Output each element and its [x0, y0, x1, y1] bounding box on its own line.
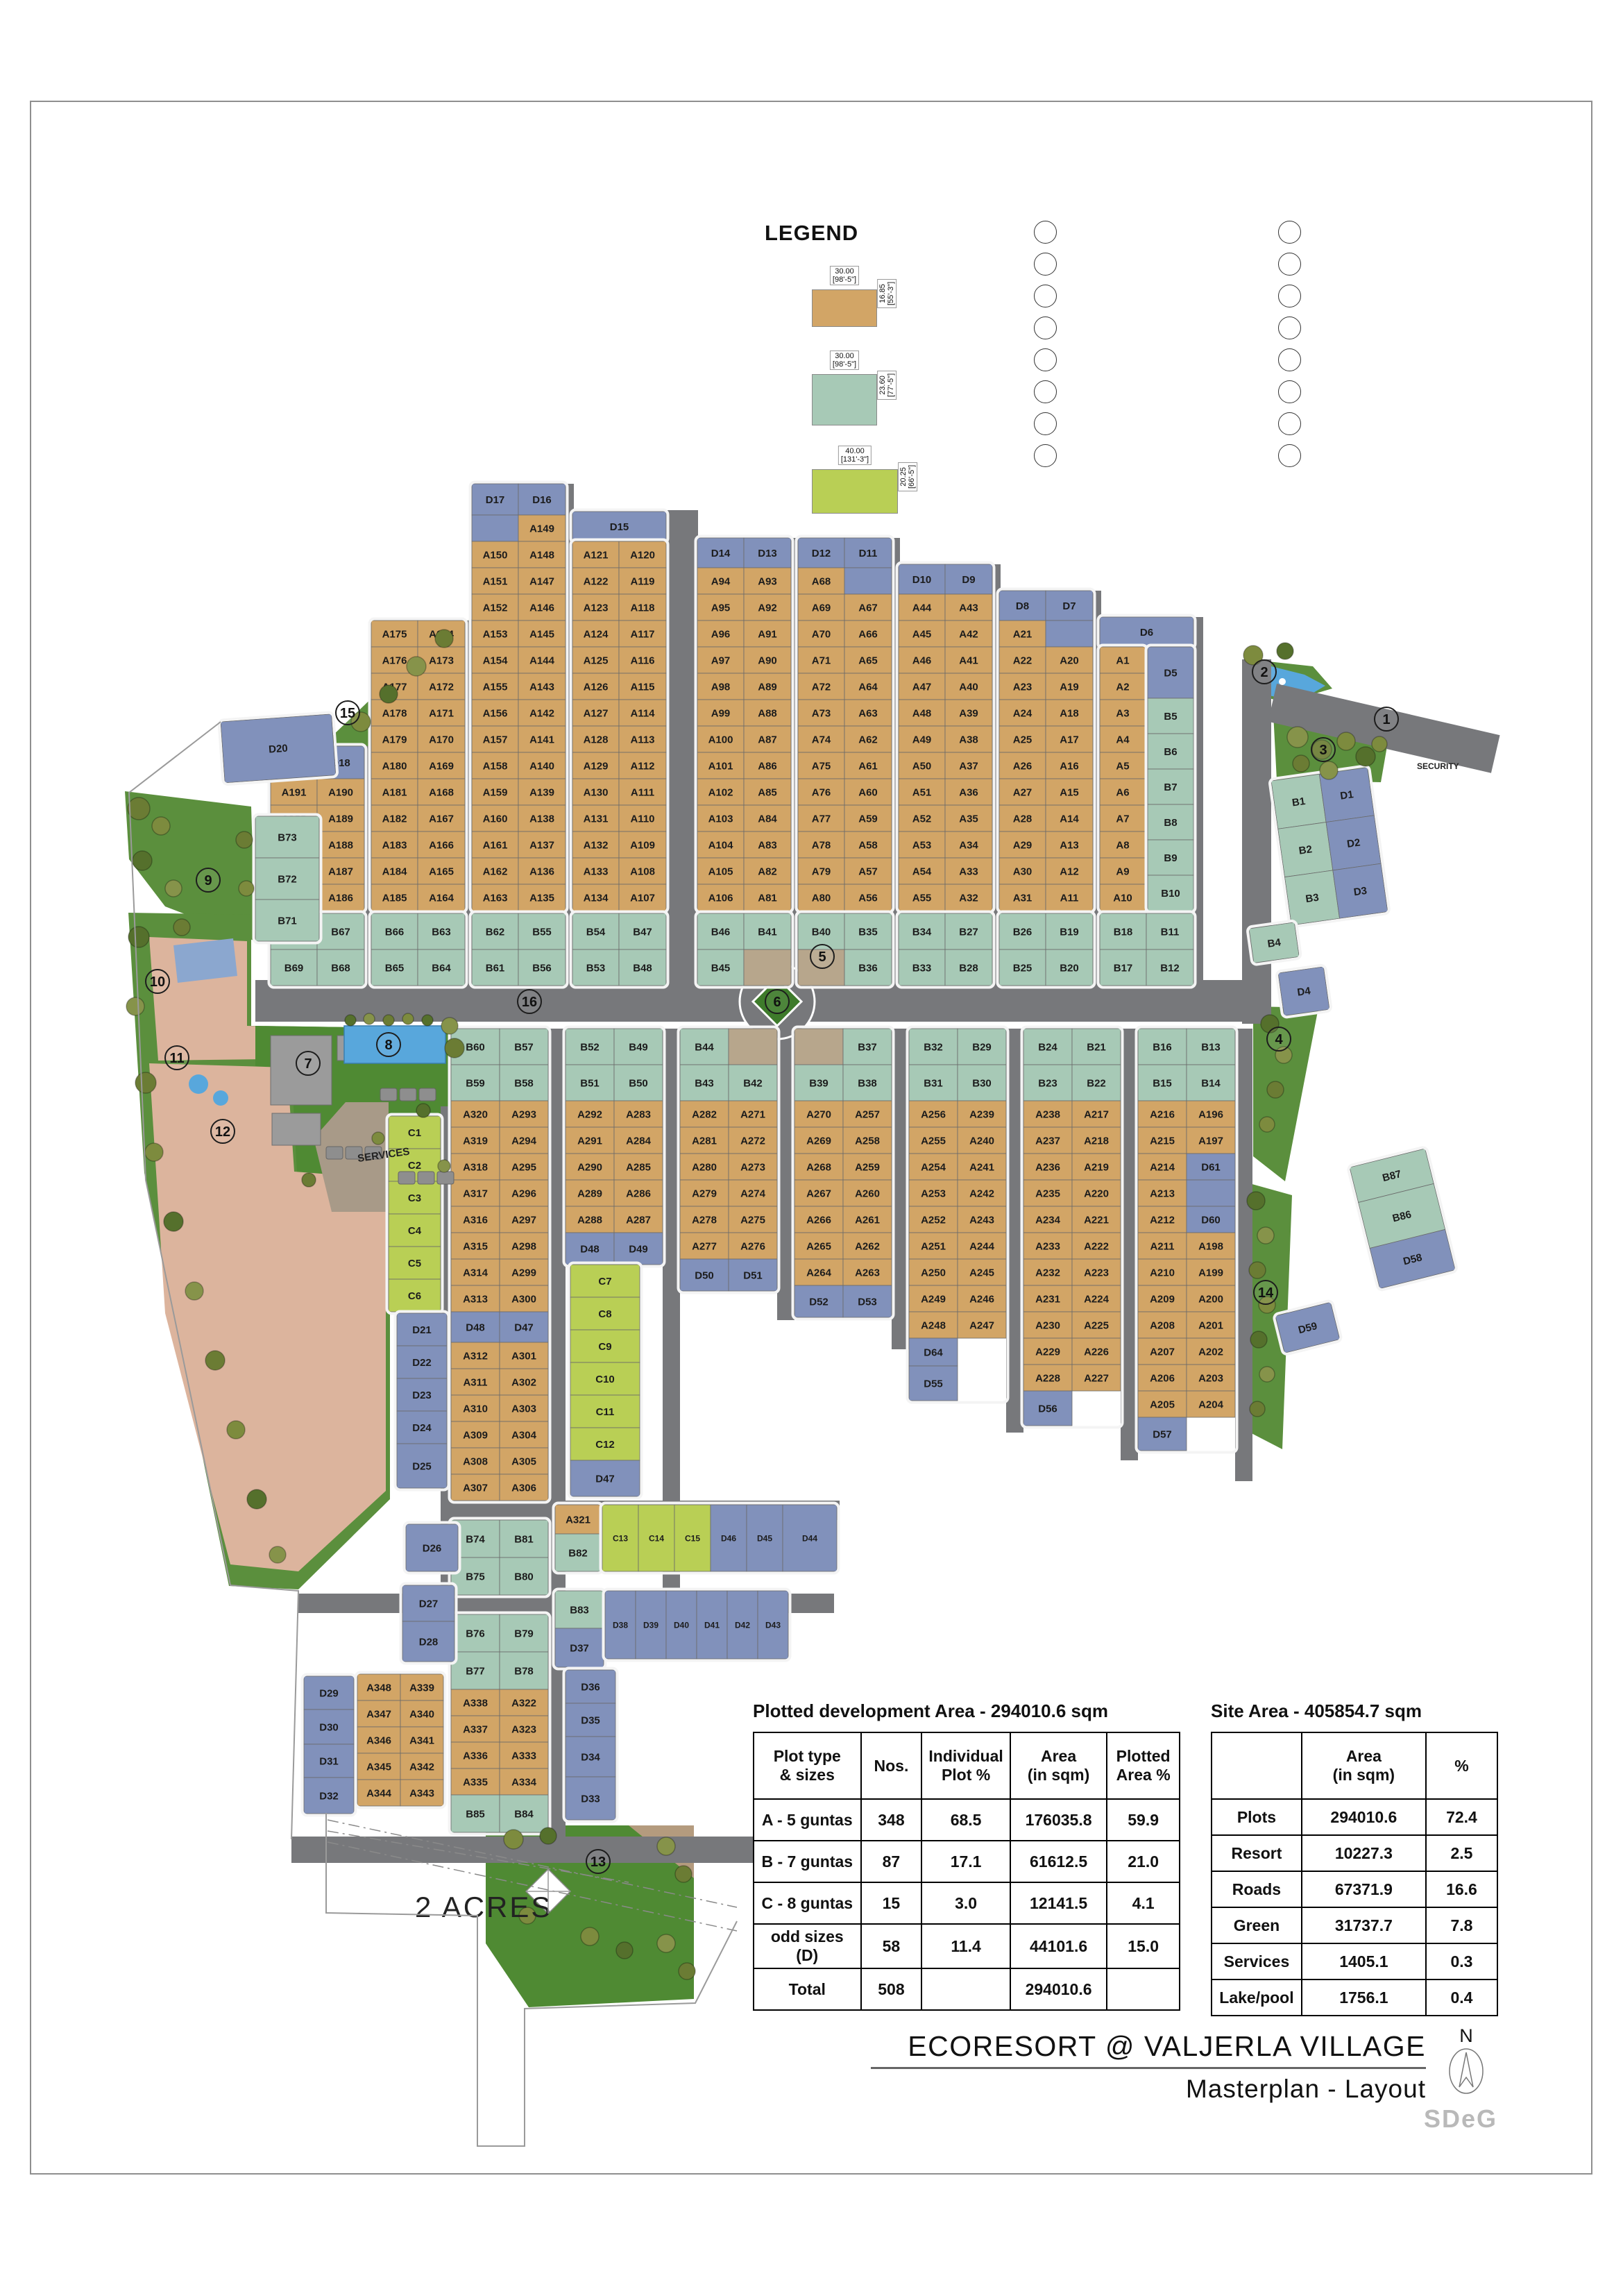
- plot-label: A240: [969, 1135, 994, 1147]
- plot-label: D4: [1296, 985, 1311, 999]
- plot-label: A338: [463, 1697, 488, 1709]
- plot-label: A293: [511, 1108, 536, 1120]
- legend-item-C: 40.00[131'-3"]20.25[66'-5"]: [765, 464, 1021, 519]
- tree-icon: [345, 1015, 356, 1026]
- legend-title: LEGEND: [765, 221, 1021, 246]
- table-cell: 67371.9: [1302, 1871, 1426, 1907]
- plot-label: A117: [630, 628, 654, 640]
- amenity-number-icon: [1278, 316, 1301, 339]
- plot-label: B41: [758, 926, 777, 938]
- plot-label: B59: [466, 1077, 485, 1089]
- plot-label: B65: [385, 962, 405, 974]
- plot-label: A317: [463, 1188, 488, 1199]
- table-row: A - 5 guntas34868.5176035.859.9: [754, 1799, 1180, 1841]
- water-feature: [213, 1090, 228, 1106]
- plot-label: B50: [629, 1077, 648, 1089]
- plot-block: B34B27B33B28: [897, 912, 994, 988]
- plot-label: A316: [463, 1214, 488, 1226]
- plot-label: A212: [1150, 1214, 1175, 1226]
- plot-label: A127: [584, 707, 609, 719]
- cottage-tent-icon: [418, 1172, 434, 1184]
- plot-label: A15: [1060, 786, 1079, 798]
- table-cell: 0.4: [1426, 1980, 1497, 2016]
- plot-label: B31: [924, 1077, 943, 1089]
- plot-label: B62: [486, 926, 505, 938]
- plot-label: C15: [685, 1534, 700, 1544]
- plot-label: D42: [735, 1621, 750, 1630]
- amenity-marker-13: 13: [586, 1850, 610, 1873]
- plot-cell: [1046, 621, 1093, 647]
- plot-label: A42: [959, 628, 978, 640]
- plot-label: A77: [812, 813, 831, 825]
- legend-swatch: [812, 469, 898, 514]
- amenity-marker-6: 6: [765, 990, 789, 1013]
- plot-label: A274: [740, 1188, 766, 1199]
- table-cell: 17.1: [921, 1841, 1010, 1882]
- plot-label: A19: [1060, 681, 1079, 693]
- table-cell: 10227.3: [1302, 1835, 1426, 1871]
- plot-label: A280: [692, 1161, 717, 1173]
- amenity-item-1: [1034, 221, 1278, 244]
- plot-label: D55: [924, 1378, 943, 1390]
- plot-label: D8: [1016, 600, 1029, 612]
- plot-label: A228: [1035, 1372, 1060, 1384]
- plot-label: D31: [319, 1755, 339, 1767]
- plot-label: A107: [630, 892, 655, 904]
- table-header-cell: Plot type & sizes: [754, 1732, 861, 1799]
- plot-label: D17: [486, 494, 505, 506]
- tree-icon: [302, 1173, 316, 1187]
- plot-label: B29: [972, 1041, 992, 1053]
- plot-label: D37: [570, 1642, 589, 1654]
- plot-label: B26: [1013, 926, 1033, 938]
- table-cell: Resort: [1212, 1835, 1302, 1871]
- plot-label: A4: [1116, 734, 1130, 745]
- plot-label: A25: [1013, 734, 1033, 745]
- plot-label: A136: [529, 866, 554, 877]
- plot-label: A128: [584, 734, 609, 745]
- plot-label: A342: [409, 1761, 434, 1773]
- plot-label: A234: [1035, 1214, 1061, 1226]
- plot-label: A169: [429, 760, 454, 772]
- plot-label: A275: [740, 1214, 765, 1226]
- plot-label: B52: [580, 1041, 600, 1053]
- plot-label: A130: [584, 786, 609, 798]
- plot-label: D9: [962, 574, 975, 586]
- plot-label: A113: [630, 734, 654, 745]
- plot-label: A232: [1035, 1267, 1060, 1278]
- amenity-number-icon: [1034, 221, 1057, 244]
- plot-label: A334: [511, 1776, 537, 1788]
- plot-label: B77: [466, 1665, 485, 1677]
- compass-icon: [1447, 2047, 1486, 2095]
- plot-label: A122: [584, 575, 609, 587]
- plot-label: A27: [1013, 786, 1033, 798]
- plot-label: A253: [921, 1188, 946, 1199]
- tree-icon: [239, 881, 254, 896]
- plot-label: B66: [385, 926, 405, 938]
- tree-icon: [1320, 761, 1338, 779]
- plot-label: A292: [577, 1108, 602, 1120]
- plot-label: C5: [408, 1258, 421, 1269]
- plot-label: A305: [511, 1455, 536, 1467]
- table-header-cell: Plotted Area %: [1107, 1732, 1180, 1799]
- plot-label: D56: [1038, 1403, 1057, 1415]
- plot-label: D61: [1201, 1161, 1221, 1173]
- plot-label: D41: [704, 1621, 720, 1630]
- plot-label: B82: [568, 1547, 588, 1559]
- plot-label: A56: [858, 892, 878, 904]
- plot-label: A162: [483, 866, 508, 877]
- amenity-marker-16: 16: [518, 990, 541, 1013]
- table-cell: 59.9: [1107, 1799, 1180, 1841]
- plot-label: A123: [584, 602, 609, 614]
- plot-label: A55: [912, 892, 932, 904]
- plot-label: B17: [1114, 962, 1133, 974]
- plot-label: A65: [858, 655, 878, 666]
- legend: LEGEND 30.00[98'-5"]16.85[55'-3"]30.00[9…: [765, 221, 1021, 555]
- plot-label: C10: [595, 1374, 615, 1385]
- plot-cell: [1187, 1180, 1235, 1206]
- plot-label: A168: [429, 786, 454, 798]
- table-cell: 0.3: [1426, 1943, 1497, 1980]
- plot-label: A138: [529, 813, 554, 825]
- plot-label: A198: [1198, 1240, 1223, 1252]
- plot-label: A155: [483, 681, 508, 693]
- plot-label: A95: [711, 602, 731, 614]
- plot-block: B24B21B23B22A238A217A237A218A236A219A235…: [1022, 1027, 1123, 1428]
- plot-label: A207: [1150, 1346, 1175, 1358]
- plot-label: A271: [740, 1108, 765, 1120]
- plot-label: A112: [630, 760, 654, 772]
- table-cell: 44101.6: [1010, 1924, 1107, 1968]
- plot-label: A63: [858, 707, 878, 719]
- tree-icon: [372, 1132, 384, 1145]
- plot-label: A272: [740, 1135, 765, 1147]
- table-cell: 15.0: [1107, 1924, 1180, 1968]
- legend-swatch: [812, 289, 877, 327]
- table-row: C - 8 guntas153.012141.54.1: [754, 1882, 1180, 1924]
- plot-label: D33: [581, 1793, 600, 1805]
- amenity-item-11: [1278, 285, 1556, 307]
- tree-icon: [164, 1212, 183, 1231]
- plot-label: A243: [969, 1214, 994, 1226]
- plot-label: A146: [529, 602, 554, 614]
- plot-block: B46B41B45: [696, 912, 793, 988]
- table-cell: 1405.1: [1302, 1943, 1426, 1980]
- table-cell: 176035.8: [1010, 1799, 1107, 1841]
- tree-icon: [679, 1963, 695, 1980]
- plot-label: B39: [809, 1077, 829, 1089]
- plot-label: B54: [586, 926, 606, 938]
- svg-text:6: 6: [773, 995, 781, 1010]
- plot-label: A75: [812, 760, 831, 772]
- plot-label: A315: [463, 1240, 488, 1252]
- tree-icon: [205, 1351, 225, 1370]
- plot-block: B44B43B42A282A271A281A272A280A273A279A27…: [679, 1027, 779, 1293]
- plot-label: A132: [584, 839, 609, 851]
- plot-label: A190: [328, 786, 353, 798]
- plot-label: A304: [511, 1429, 537, 1441]
- amenity-item-14: [1278, 380, 1556, 403]
- plot-label: A260: [855, 1188, 880, 1199]
- plot-label: B32: [924, 1041, 943, 1053]
- plot-label: A256: [921, 1108, 946, 1120]
- plot-label: A160: [483, 813, 508, 825]
- plot-label: B33: [912, 962, 932, 974]
- plot-label: B76: [466, 1628, 485, 1639]
- plot-label: A124: [584, 628, 609, 640]
- plot-label: A224: [1084, 1293, 1110, 1305]
- svg-text:11: 11: [169, 1051, 184, 1066]
- table-cell: 72.4: [1426, 1799, 1497, 1835]
- plot-label: A302: [511, 1376, 536, 1388]
- tree-icon: [1247, 1192, 1265, 1210]
- plot-label: A276: [740, 1240, 765, 1252]
- plot-label: B68: [331, 962, 350, 974]
- amenity-item-13: [1278, 348, 1556, 371]
- plot-label: A147: [529, 575, 554, 587]
- plot-label: A53: [912, 839, 932, 851]
- legend-width-dim: 30.00[98'-5"]: [830, 351, 859, 370]
- plot-label: A213: [1150, 1188, 1175, 1199]
- plot-label: A233: [1035, 1240, 1060, 1252]
- plot-label: D48: [466, 1322, 485, 1333]
- amenity-item-7: [1034, 412, 1278, 435]
- plot-label: A218: [1084, 1135, 1109, 1147]
- plot-block: B26B19B25B20: [998, 912, 1095, 988]
- plot-label: A344: [366, 1787, 392, 1799]
- plot-label: A12: [1060, 866, 1079, 877]
- plot-label: D24: [412, 1422, 432, 1434]
- amenity-number-icon: [1034, 444, 1057, 467]
- plot-label: A290: [577, 1161, 602, 1173]
- tree-icon: [128, 797, 150, 820]
- plot-label: B2: [1298, 843, 1313, 857]
- plot-label: C13: [613, 1534, 628, 1544]
- plot-label: A270: [806, 1108, 831, 1120]
- tree-icon: [1293, 755, 1309, 772]
- table-cell: 58: [861, 1924, 922, 1968]
- plot-label: B78: [514, 1665, 534, 1677]
- plot-cell: [794, 1029, 843, 1065]
- legend-swatch-wrap: 30.00[98'-5"]16.85[55'-3"]: [812, 289, 877, 327]
- tree-icon: [445, 1038, 464, 1058]
- plot-label: A322: [511, 1697, 536, 1709]
- plot-label: B72: [278, 873, 297, 885]
- plot-label: A145: [529, 628, 554, 640]
- plot-label: A73: [812, 707, 831, 719]
- plot-label: A196: [1198, 1108, 1223, 1120]
- plot-label: A100: [708, 734, 733, 745]
- plot-label: D51: [743, 1269, 763, 1281]
- plot-label: A241: [969, 1161, 994, 1173]
- cottage-tent-icon: [437, 1172, 454, 1184]
- plot-block: B60B57B59B58A320A293A319A294A318A295A317…: [450, 1027, 550, 1503]
- tree-icon: [269, 1546, 286, 1563]
- plot-label: A121: [584, 549, 609, 561]
- amenity-number-icon: [1034, 316, 1057, 339]
- plot-label: A67: [858, 602, 878, 614]
- plot-label: B43: [695, 1077, 714, 1089]
- plot-label: D48: [580, 1243, 600, 1255]
- plot-label: C11: [596, 1406, 615, 1418]
- plot-block: D5B5B6B7B8B9B10: [1146, 645, 1196, 913]
- plot-label: A79: [812, 866, 831, 877]
- plot-label: A57: [858, 866, 878, 877]
- plot-label: A206: [1150, 1372, 1175, 1384]
- plot-label: A259: [855, 1161, 880, 1173]
- tree-icon: [1257, 1227, 1274, 1244]
- plot-label: D44: [802, 1534, 817, 1544]
- plot-label: A99: [711, 707, 731, 719]
- plot-label: A299: [511, 1267, 536, 1278]
- plot-block: B52B49B51B50A292A283A291A284A290A285A289…: [564, 1027, 665, 1267]
- svg-text:5: 5: [818, 949, 826, 965]
- plot-label: A108: [630, 866, 655, 877]
- plot-label: A43: [959, 602, 978, 614]
- plot-label: A262: [855, 1240, 880, 1252]
- tree-icon: [128, 927, 149, 947]
- table-cell: 15: [861, 1882, 922, 1924]
- plot-label: A229: [1035, 1346, 1060, 1358]
- tree-icon: [1337, 732, 1355, 750]
- table-header-cell: [1212, 1732, 1302, 1799]
- plot-label: A282: [692, 1108, 717, 1120]
- plot-label: D53: [858, 1296, 877, 1308]
- plot-label: B23: [1038, 1077, 1057, 1089]
- plot-block: D4: [1276, 965, 1332, 1018]
- title-block: ECORESORT @ VALJERLA VILLAGE Masterplan …: [871, 2030, 1426, 2104]
- plot-label: A88: [758, 707, 777, 719]
- plot-label: A254: [921, 1161, 946, 1173]
- plot-label: B64: [432, 962, 451, 974]
- plot-label: A245: [969, 1267, 994, 1278]
- plot-block: B40B35B36: [797, 912, 894, 988]
- plot-label: A131: [584, 813, 609, 825]
- amenity-number-icon: [1278, 412, 1301, 435]
- plot-label: A22: [1013, 655, 1033, 666]
- plot-label: A319: [463, 1135, 488, 1147]
- table-row: odd sizes (D)5811.444101.615.0: [754, 1924, 1180, 1968]
- legend-item-A: 30.00[98'-5"]16.85[55'-3"]: [765, 280, 1021, 336]
- plot-label: A289: [577, 1188, 602, 1199]
- plot-label: A142: [529, 707, 554, 719]
- plot-label: D3: [1353, 885, 1368, 899]
- table-cell: 61612.5: [1010, 1841, 1107, 1882]
- amenity-item-3: [1034, 285, 1278, 307]
- plot-label: D64: [924, 1347, 943, 1358]
- plot-label: A281: [692, 1135, 717, 1147]
- map-text: SECURITY: [1417, 761, 1459, 771]
- plot-label: D2: [1346, 837, 1361, 851]
- road: [1242, 659, 1271, 1024]
- plot-label: D39: [643, 1621, 658, 1630]
- plot-label: A221: [1084, 1214, 1109, 1226]
- plot-label: B36: [858, 962, 878, 974]
- plot-label: A215: [1150, 1135, 1175, 1147]
- plot-label: A141: [529, 734, 554, 745]
- amenity-number-icon: [1034, 285, 1057, 307]
- table-cell: C - 8 guntas: [754, 1882, 861, 1924]
- plot-label: A176: [382, 655, 407, 666]
- plot-label: A1: [1116, 655, 1129, 666]
- plot-label: A287: [626, 1214, 651, 1226]
- plot-label: A200: [1198, 1293, 1223, 1305]
- plot-strip: C13C14C15D46D45D44: [601, 1503, 839, 1573]
- plot-label: C1: [408, 1127, 421, 1139]
- plot-label: A172: [429, 681, 454, 693]
- amenity-number-icon: [1034, 412, 1057, 435]
- plot-label: A170: [429, 734, 454, 745]
- plot-label: A277: [692, 1240, 717, 1252]
- tree-icon: [1356, 747, 1375, 766]
- plot-label: A33: [959, 866, 978, 877]
- plot-label: A150: [483, 549, 508, 561]
- plot-block: B54B47B53B48: [571, 912, 668, 988]
- map-text: 2 ACRES: [415, 1891, 552, 1923]
- plot-label: A333: [511, 1750, 536, 1762]
- table-cell: Roads: [1212, 1871, 1302, 1907]
- plot-label: A298: [511, 1240, 536, 1252]
- tree-icon: [185, 1282, 203, 1300]
- plot-label: D30: [319, 1721, 339, 1733]
- plot-label: A86: [758, 760, 777, 772]
- north-arrow-icon: N: [1442, 2025, 1490, 2099]
- plot-label: A47: [912, 681, 932, 693]
- table-cell: B - 7 guntas: [754, 1841, 861, 1882]
- plot-label: B83: [570, 1604, 589, 1616]
- plot-label: B63: [432, 926, 451, 938]
- tree-icon: [165, 880, 182, 897]
- cottage-tent-icon: [326, 1147, 343, 1159]
- plot-label: A230: [1035, 1319, 1060, 1331]
- plot-label: A92: [758, 602, 777, 614]
- tree-icon: [1287, 727, 1308, 748]
- amenity-item-16: [1278, 444, 1556, 467]
- plot-label: A151: [483, 575, 508, 587]
- plot-label: B79: [514, 1628, 534, 1639]
- amenity-item-4: [1034, 316, 1278, 339]
- plot-label: B1: [1291, 795, 1306, 809]
- plot-label: A158: [483, 760, 508, 772]
- table-cell: 294010.6: [1302, 1799, 1426, 1835]
- table-cell: 294010.6: [1010, 1968, 1107, 2010]
- plot-label: A40: [959, 681, 978, 693]
- tree-icon: [173, 919, 190, 936]
- plot-label: A204: [1198, 1399, 1224, 1410]
- plot-label: A30: [1013, 866, 1033, 877]
- plot-label: A134: [584, 892, 609, 904]
- plot-label: B51: [580, 1077, 600, 1089]
- plot-label: A91: [758, 628, 777, 640]
- plot-label: C6: [408, 1290, 421, 1302]
- svg-text:3: 3: [1319, 743, 1327, 758]
- plot-label: A283: [626, 1108, 651, 1120]
- plot-label: A180: [382, 760, 407, 772]
- plot-label: A348: [366, 1682, 391, 1694]
- plot-label: A69: [812, 602, 831, 614]
- amenities-list: [1034, 221, 1561, 476]
- tree-icon: [1250, 1401, 1265, 1417]
- amenity-marker-12: 12: [211, 1120, 235, 1143]
- plot-label: B37: [858, 1041, 877, 1053]
- plot-label: C7: [598, 1276, 611, 1288]
- plot-label: B84: [514, 1808, 534, 1820]
- plot-label: C2: [408, 1160, 421, 1172]
- table-cell: 348: [861, 1799, 922, 1841]
- plot-label: A191: [282, 786, 307, 798]
